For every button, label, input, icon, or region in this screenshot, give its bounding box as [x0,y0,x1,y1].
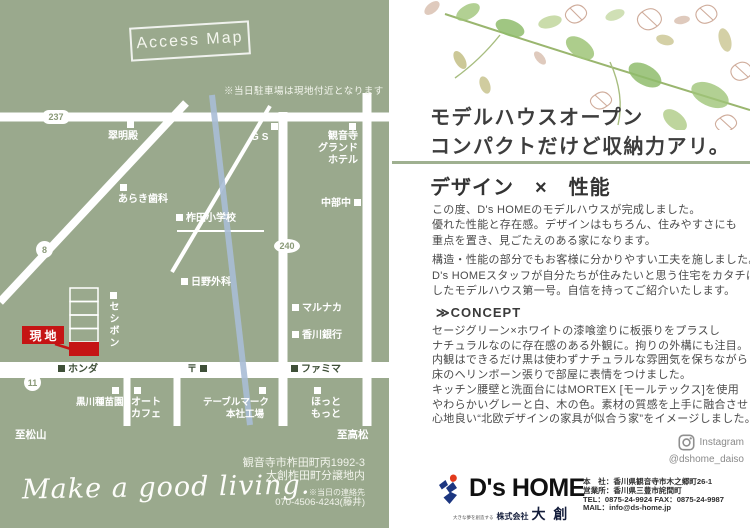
poi-hino-clinic: 日野外科 [181,277,231,289]
poi-chubu-junior-high: 中部中 [321,198,361,210]
poi-famima: ファミマ [291,364,341,376]
route-badge-8: 8 [36,241,53,258]
map-page: Access Map ※当日駐車場は現地付近となります 237 8 240 11… [0,0,389,528]
lot-grid [70,288,98,342]
poi-marker-icon [349,123,356,130]
company-mail: MAIL：info@ds-home.jp [583,504,724,513]
intro-paragraph-3: D's HOMEスタッフが自分たちが住みたいと思う住宅をカタチに したモデルハウ… [432,269,750,300]
poi-gas-station: GS [251,132,271,144]
address-line-1: 観音寺市柞田町丙1992-3 [243,457,365,470]
company-logo-line: 大きな夢を創造する株式会社大 創 [453,504,569,524]
poi-seshibon: セシボン [106,301,118,349]
instagram-icon [678,434,695,451]
company-prefix: 株式会社 [497,512,529,521]
poi-post-office: 〒 [187,364,207,376]
section-title: デザイン × 性能 [430,171,611,200]
intro-paragraph-1: この度、D's HOMEのモデルハウスが完成しました。 優れた性能と存在感。デザ… [432,203,737,249]
poi-kagawa-bank: 香川銀行 [292,330,342,342]
concept-heading: ≫CONCEPT [436,305,521,321]
access-map-title: Access Map [136,29,244,54]
poi-marker-icon [120,184,127,191]
concept-paragraph-1: セージグリーン×ホワイトの漆喰塗りに板張りをプラスし ナチュラルなのに存在感のあ… [432,324,748,382]
poi-marker-icon [271,123,278,130]
intro-paragraph-2: 構造・性能の部分でもお客様に分かりやすい工夫を施しました。 [432,253,750,268]
poi-kuita-elementary: 柞田小学校 [176,213,236,225]
poi-marker-icon [127,121,134,128]
headline-line-1: モデルハウスオープン [430,101,644,130]
direction-takamatsu: 至高松 [337,429,369,441]
route-badge-11: 11 [24,374,41,391]
poi-tablemark-factory: テーブルマーク 本社工場 [203,397,269,421]
poi-marker-icon [314,387,321,394]
poi-marker-icon [292,304,299,311]
poi-marker-icon [176,214,183,221]
company-name: 大 創 [532,506,570,522]
poi-honda: ホンダ [58,364,98,376]
poi-marker-icon [292,331,299,338]
poi-suimeiden: 翠明殿 [108,131,138,143]
direction-matsuyama: 至松山 [15,429,47,441]
dshome-logo-text: D's HOME [469,474,585,503]
site-callout: 現地 [22,326,64,344]
poi-marker-icon [110,292,117,299]
poi-kurokawa-nursery: 黒川種苗園 [76,397,124,409]
poi-marker-icon [200,365,207,372]
poi-marker-icon [112,387,119,394]
brand-tagline-script: Make a good living. [22,469,311,505]
section-divider [392,161,750,164]
poi-auto-cafe: オート カフェ [131,397,161,421]
concept-paragraph-2: キッチン腰壁と洗面台にはMORTEX [モールテックス]を使用 やわらかいグレー… [432,383,750,427]
flyer-page: モデルハウスオープン コンパクトだけど収納力アリ。 デザイン × 性能 この度、… [389,0,750,528]
poi-hotto-motto: ほっと もっと [311,397,341,421]
headline-line-2: コンパクトだけど収納力アリ。 [430,130,730,159]
poi-marker-icon [259,387,266,394]
instagram-handle: @dshome_daiso [669,454,744,465]
poi-marker-icon [354,199,361,206]
poi-marker-icon [291,365,298,372]
dshome-logo-icon [437,473,467,507]
parking-note: ※当日駐車場は現地付近となります [224,83,384,97]
poi-araki-dental: あらき歯科 [118,194,168,206]
poi-marunaka: マルナカ [292,303,342,315]
poi-kanonji-grand-hotel: 観音寺 グランド ホテル [318,131,358,167]
map-roads-graphic [0,0,389,528]
route-badge-237: 237 [42,110,70,124]
company-info-block: 本 社：香川県観音寺市木之郷町26-1 営業所：香川県三豊市詫間町 TEL：08… [583,478,724,513]
poi-marker-icon [181,278,188,285]
instagram-label: Instagram [700,437,744,448]
poi-marker-icon [58,365,65,372]
route-badge-240: 240 [274,239,300,253]
flyer-canvas: Access Map ※当日駐車場は現地付近となります 237 8 240 11… [0,0,750,528]
instagram-block: Instagram @dshome_daiso [669,434,744,465]
logo-tagline: 大きな夢を創造する [453,515,494,520]
poi-marker-icon [134,387,141,394]
